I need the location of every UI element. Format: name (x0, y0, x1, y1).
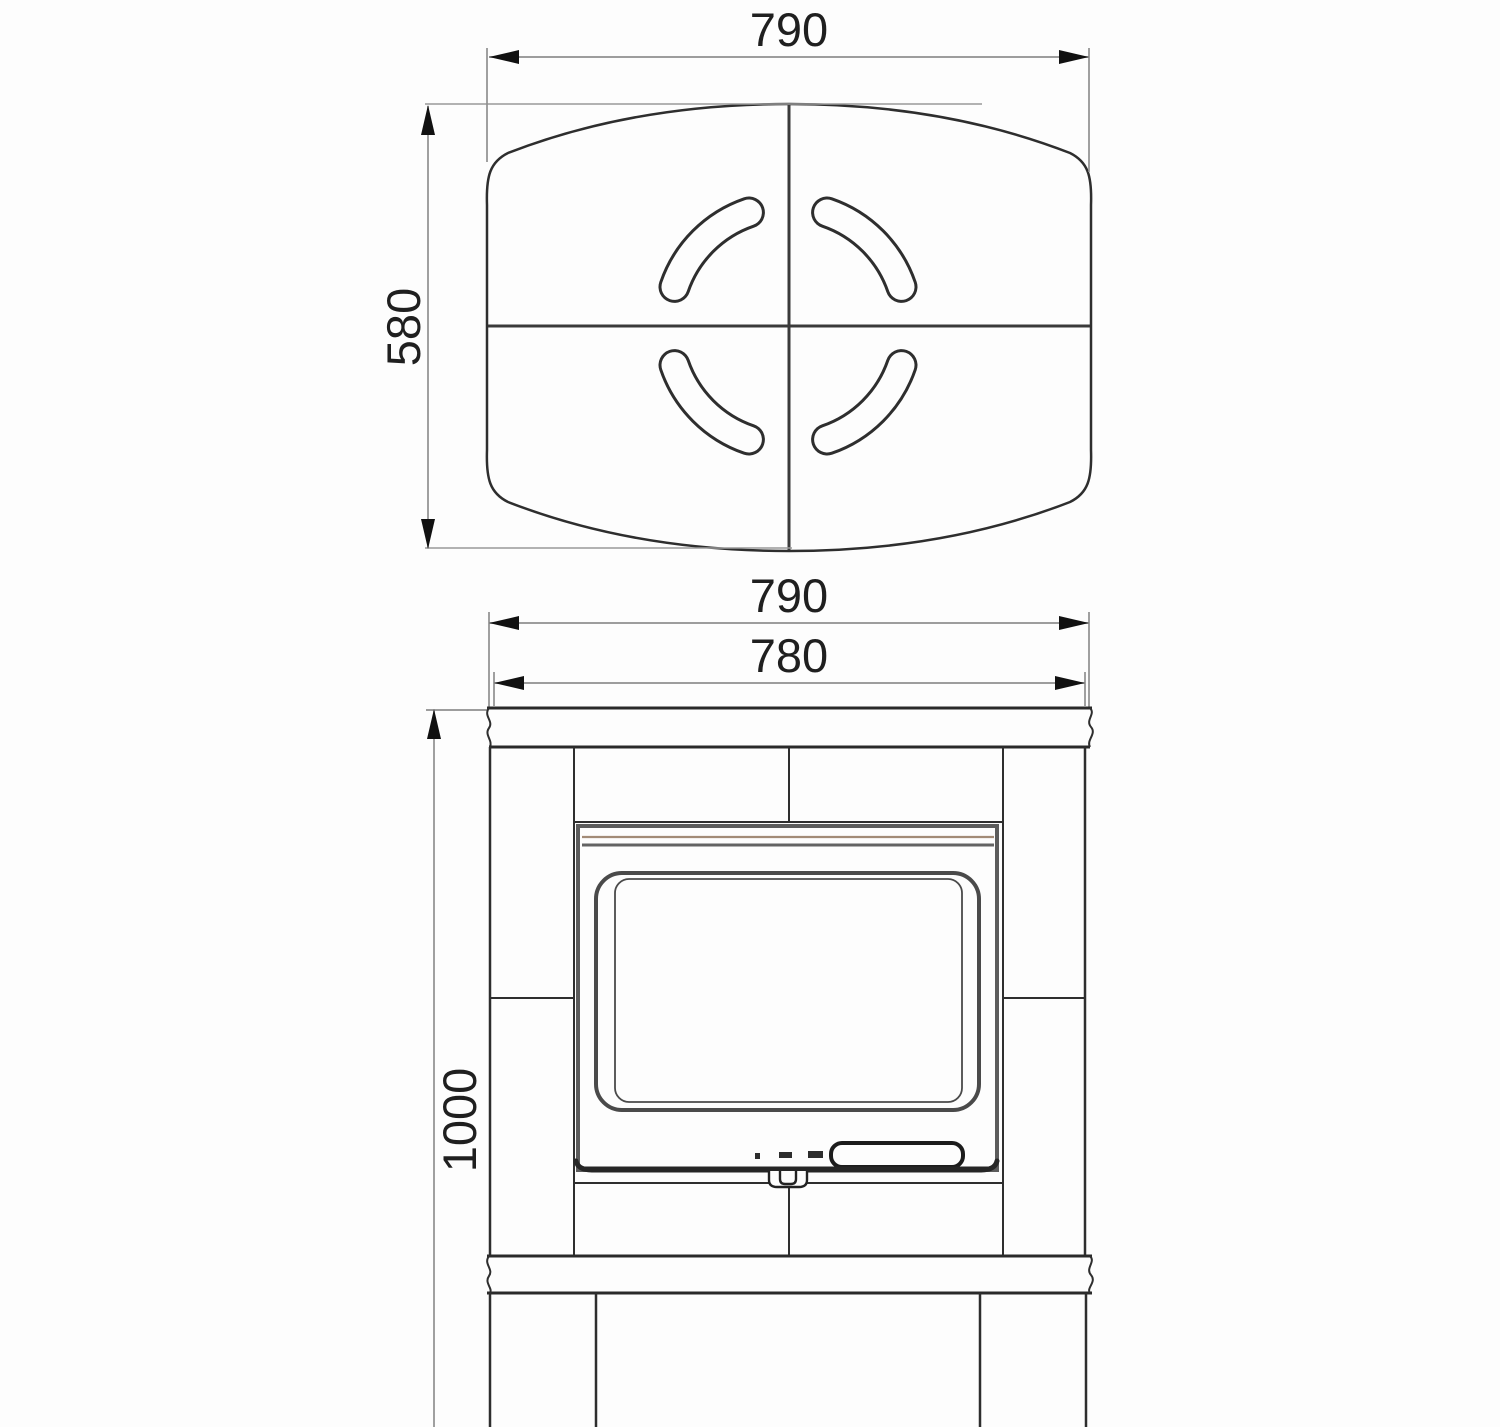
air-control-dash-1 (779, 1152, 792, 1158)
pedestal-base (490, 1293, 1086, 1427)
door-frame (578, 826, 997, 1170)
front-view: 790 780 1000 (426, 569, 1093, 1427)
door-latch-inner (780, 1171, 796, 1184)
arrowhead-up (427, 709, 441, 739)
top-slab (487, 708, 1093, 747)
dim-front-body-width: 780 (494, 629, 1085, 706)
top-slab-right-break-edge (1089, 708, 1093, 747)
dim-label-top-width: 790 (750, 3, 828, 56)
dim-label-front-body-width: 780 (750, 629, 828, 682)
stove-dimension-drawing: 790 580 790 780 (0, 0, 1500, 1427)
firebox-door (576, 826, 997, 1187)
top-slab-left-break-edge (487, 708, 490, 747)
arrowhead-right (1059, 616, 1089, 630)
air-control-dot (755, 1153, 760, 1159)
door-handle (831, 1143, 963, 1167)
dim-label-front-top-width: 790 (750, 569, 828, 622)
technical-drawing-canvas: 790 580 790 780 (0, 0, 1500, 1427)
air-control-dash-2 (808, 1151, 823, 1158)
dim-top-view-depth: 580 (377, 105, 435, 549)
door-glass-inner (615, 879, 962, 1102)
dim-label-front-height: 1000 (433, 1068, 486, 1173)
door-latch (769, 1171, 807, 1187)
arrowhead-right (1055, 676, 1085, 690)
arrowhead-right (1059, 50, 1089, 64)
bottom-slab-right-break-edge (1089, 1256, 1093, 1293)
arrowhead-down (421, 519, 435, 549)
top-view: 790 580 (377, 3, 1091, 551)
arrowhead-left (489, 50, 519, 64)
dim-front-height: 1000 (426, 709, 487, 1427)
bottom-slab (487, 1256, 1093, 1293)
arrowhead-left (494, 676, 524, 690)
arrowhead-up (421, 105, 435, 135)
bottom-slab-left-break-edge (487, 1256, 490, 1293)
arrowhead-left (489, 616, 519, 630)
dim-label-top-depth: 580 (377, 288, 430, 366)
door-glass-outer (596, 873, 979, 1110)
